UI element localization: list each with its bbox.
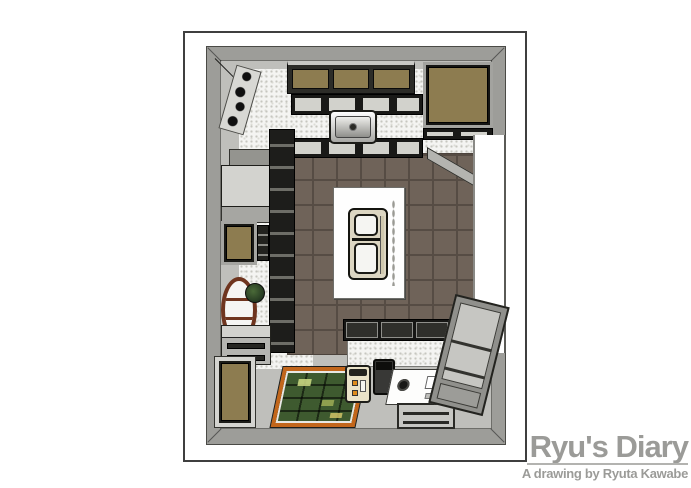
stove-panel: [416, 322, 448, 338]
appliance-lid: [376, 362, 392, 370]
corner-wall-cabinet: [423, 62, 493, 128]
drawer-slot: [227, 343, 265, 349]
cooktop-controls: [380, 216, 384, 274]
rug-accent: [297, 379, 312, 385]
kitchen-island: [333, 187, 405, 299]
bottom-counter-stove: [343, 319, 451, 341]
sideboard-top: [222, 326, 270, 338]
upper-cabinet-row: [287, 61, 415, 94]
left-wall-cabinet: [221, 221, 257, 265]
rice-cooker: [345, 365, 371, 403]
rice-cooker-button: [352, 390, 358, 396]
wall-crease: [490, 47, 504, 61]
refrigerator: [221, 165, 275, 207]
burner: [354, 243, 378, 274]
wall-crease: [490, 428, 504, 442]
base-cabinet-column: [269, 129, 295, 353]
signature-underline: [527, 463, 688, 465]
drawer-slot: [403, 412, 449, 415]
stove-panel: [381, 322, 413, 338]
bottom-counter-base: [347, 341, 447, 367]
cabinet-door: [226, 226, 252, 260]
kettle: [396, 379, 411, 391]
rug-accent: [321, 400, 334, 406]
signature-subtitle: A drawing by Ryuta Kawabe: [522, 466, 688, 481]
burner: [354, 214, 378, 236]
rug-accent: [330, 413, 342, 418]
drawing-frame: [183, 31, 527, 462]
potted-plant: [245, 283, 265, 303]
cabinet-door: [428, 67, 488, 123]
page: Ryu's Diary A drawing by Ryuta Kawabe: [0, 0, 691, 488]
cabinet-door: [292, 69, 329, 89]
rice-cooker-window: [360, 380, 366, 392]
table-bar: [225, 317, 253, 320]
rice-cooker-lid: [349, 369, 367, 376]
cabinet-door: [373, 69, 410, 89]
cabinet-door: [221, 363, 249, 421]
kitchen-sink: [329, 110, 377, 144]
drawer-slot: [403, 421, 449, 424]
lower-cabinet: [215, 357, 255, 427]
rice-cooker-button: [352, 380, 358, 386]
wall-crease: [207, 428, 221, 442]
cooktop: [348, 208, 388, 280]
cabinet-door: [333, 69, 370, 89]
signature-title: Ryu's Diary: [530, 429, 688, 465]
shelf-strip: [257, 225, 269, 261]
kitchen-room: [206, 46, 506, 445]
stove-panel: [346, 322, 378, 338]
sink-drain: [350, 124, 356, 130]
